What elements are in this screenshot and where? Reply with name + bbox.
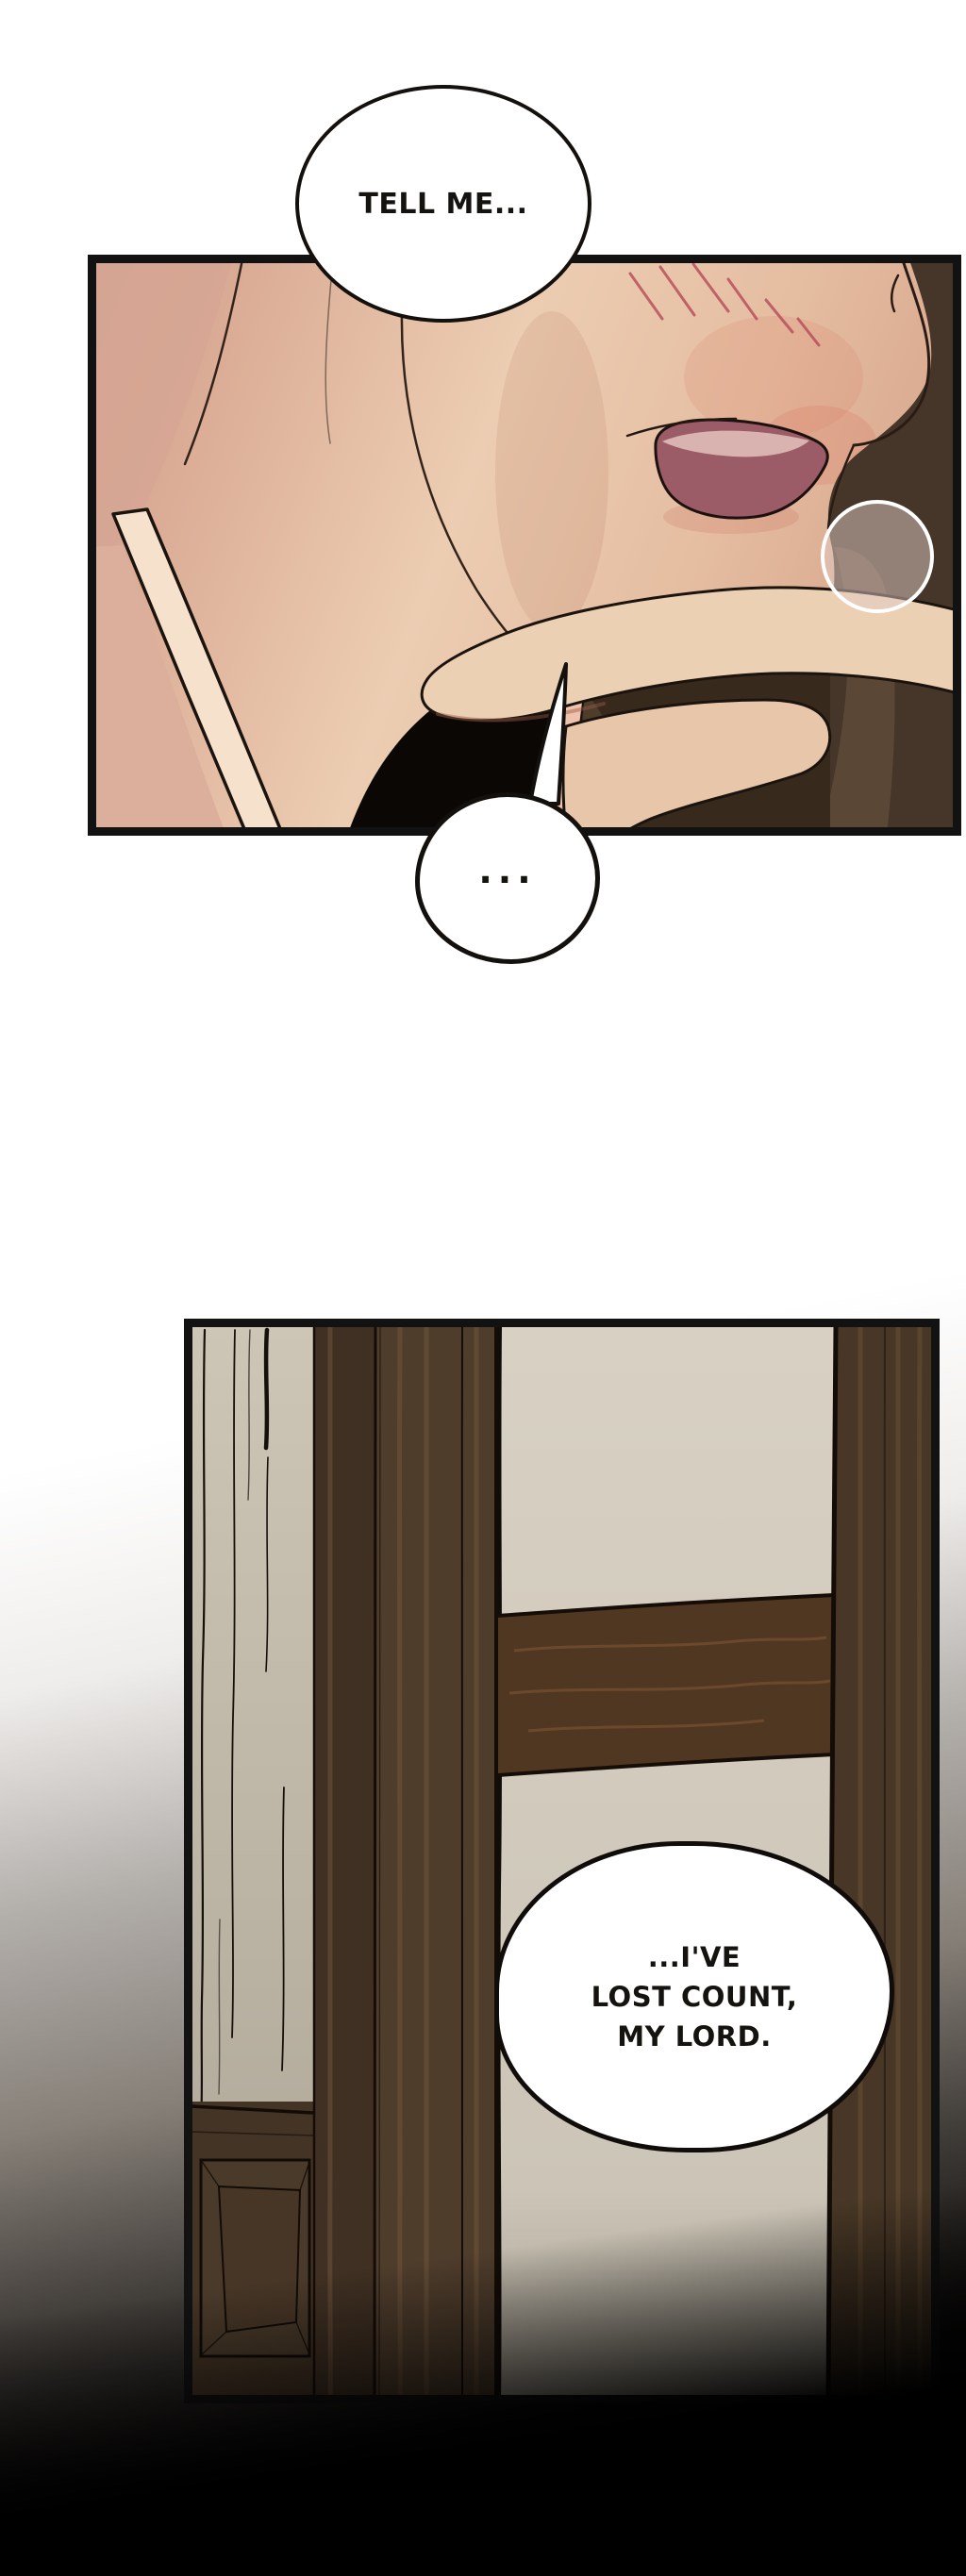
speech-bubble-dots-tail [517, 660, 577, 807]
center-wood-post [313, 1326, 498, 2403]
comic-page: TELL ME... ... ...I'VE LOST COUNT, MY LO… [0, 0, 966, 2576]
door-artwork [184, 1319, 940, 2403]
right-wood-post [826, 1326, 940, 2403]
speech-bubble-lost-count: ...I'VE LOST COUNT, MY LORD. [494, 1841, 894, 2152]
speech-text-tell-me: TELL ME... [358, 188, 527, 221]
paper-left-edge [498, 1326, 500, 2403]
crossbar-beam [498, 1595, 834, 1775]
dialogue-line-1: ...I'VE [591, 1937, 798, 1977]
speech-text-dots: ... [478, 850, 536, 891]
speech-bubble-tell-me: TELL ME... [295, 85, 591, 323]
breath-puff [823, 502, 932, 611]
speech-text-lost-count: ...I'VE LOST COUNT, MY LORD. [591, 1937, 798, 2056]
door-bottom-inset [192, 2102, 313, 2403]
dialogue-line-3: MY LORD. [591, 2017, 798, 2056]
speech-bubble-dots: ... [415, 792, 600, 964]
wallpaper-strip [192, 1326, 313, 2102]
panel-2 [184, 1319, 940, 2403]
dialogue-line-2: LOST COUNT, [591, 1977, 798, 2017]
